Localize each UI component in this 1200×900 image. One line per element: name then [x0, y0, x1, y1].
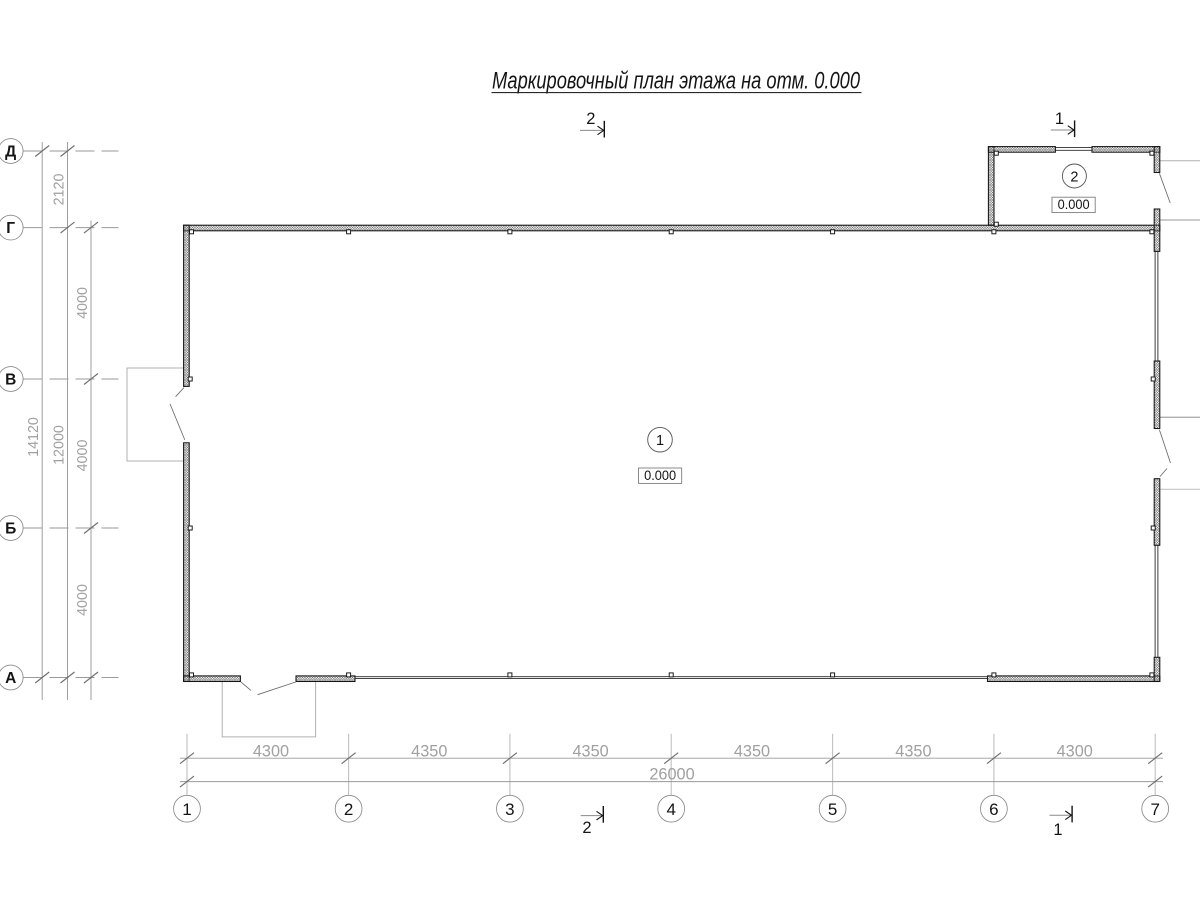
svg-text:3: 3 — [505, 800, 514, 819]
svg-text:1: 1 — [1053, 821, 1062, 839]
svg-text:4: 4 — [666, 800, 675, 819]
svg-text:1: 1 — [182, 800, 191, 819]
svg-text:0.000: 0.000 — [644, 467, 676, 483]
svg-text:Б: Б — [5, 521, 16, 538]
svg-text:4300: 4300 — [1057, 742, 1093, 760]
svg-text:4000: 4000 — [75, 584, 91, 616]
svg-text:1: 1 — [656, 433, 664, 449]
svg-text:4350: 4350 — [895, 742, 931, 760]
svg-text:Д: Д — [5, 144, 16, 161]
svg-text:4000: 4000 — [75, 287, 91, 319]
svg-text:4350: 4350 — [572, 742, 608, 760]
svg-text:4000: 4000 — [75, 440, 91, 472]
svg-text:12000: 12000 — [52, 425, 68, 465]
svg-text:26000: 26000 — [649, 765, 694, 783]
svg-text:2120: 2120 — [52, 174, 68, 206]
svg-text:1: 1 — [1055, 110, 1064, 128]
svg-text:4350: 4350 — [734, 742, 770, 760]
svg-text:2: 2 — [582, 819, 591, 837]
svg-text:0.000: 0.000 — [1058, 196, 1090, 212]
svg-text:2: 2 — [344, 800, 353, 819]
svg-text:4300: 4300 — [253, 742, 289, 760]
svg-text:Маркировочный план этажа на от: Маркировочный план этажа на отм. 0.000 — [492, 68, 860, 95]
svg-text:5: 5 — [828, 800, 837, 819]
svg-text:7: 7 — [1150, 800, 1159, 819]
svg-text:2: 2 — [1070, 170, 1078, 186]
svg-text:А: А — [5, 670, 16, 687]
svg-text:В: В — [5, 372, 16, 389]
svg-text:2: 2 — [586, 110, 595, 128]
svg-text:6: 6 — [989, 800, 998, 819]
svg-text:Г: Г — [6, 220, 15, 237]
svg-text:4350: 4350 — [411, 742, 447, 760]
svg-text:14120: 14120 — [26, 417, 42, 457]
